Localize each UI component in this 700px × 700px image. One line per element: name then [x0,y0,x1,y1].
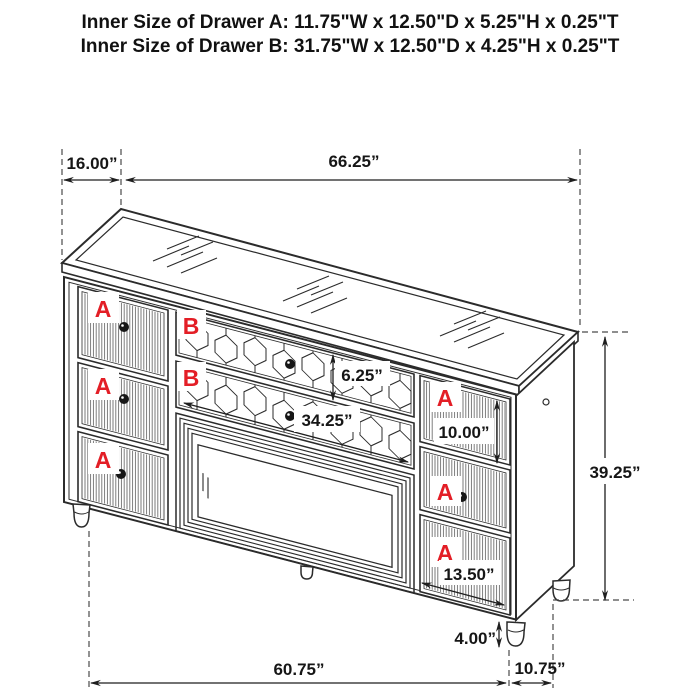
front-right-leg [507,622,525,646]
dim-overall-height: 39.25” [589,463,640,482]
drawer-a3-label: A [95,447,112,473]
drawer-a2-label: A [95,373,112,399]
dim-drawer-b-width: 34.25” [301,411,352,430]
dim-drawer-a-bottom-width: 13.50” [443,565,494,584]
title-line-2: Inner Size of Drawer B: 31.75"W x 12.50"… [81,36,620,57]
dim-bottom-depth: 10.75” [514,659,565,678]
dim-leg-height: 4.00” [454,629,496,648]
front-left-leg [73,504,90,527]
dim-top-width: 66.25” [328,152,379,171]
center-foot [301,566,313,579]
diagram-page: Inner Size of Drawer A: 11.75"W x 12.50"… [0,0,700,700]
drawer-b1-label: B [183,313,200,339]
title-line-1: Inner Size of Drawer A: 11.75"W x 12.50"… [82,12,619,33]
dresser-technical-diagram: Inner Size of Drawer A: 11.75"W x 12.50"… [0,0,700,700]
dim-top-depth: 16.00” [66,154,117,173]
drawer-a5-label: A [437,479,454,505]
drawer-a1-label: A [95,296,112,322]
drawer-a4-label: A [437,385,454,411]
dim-drawer-a-right-height: 10.00” [438,423,489,442]
dim-bottom-width: 60.75” [273,660,324,679]
dim-drawer-b-height: 6.25” [341,366,383,385]
title-block: Inner Size of Drawer A: 11.75"W x 12.50"… [81,12,620,57]
drawer-b2-label: B [183,365,200,391]
back-right-leg [553,580,570,601]
